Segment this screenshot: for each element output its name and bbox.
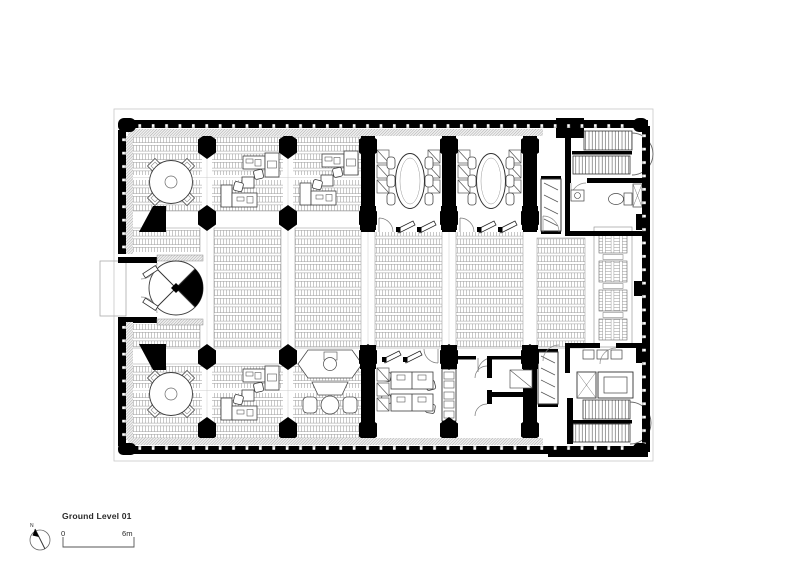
north-label: N — [30, 523, 34, 529]
meeting-table-1 — [387, 154, 433, 209]
wall-insulation-top — [128, 129, 543, 136]
cabinet-stack — [458, 150, 470, 193]
floor-plan-drawing: N Ground Level 01 0 6m — [0, 0, 800, 565]
north-arrow-icon: N — [30, 523, 50, 550]
meeting-table-2 — [468, 154, 514, 209]
wall-insulation-bottom — [128, 438, 543, 445]
shelf-unit — [538, 349, 558, 407]
wall-insulation-left — [126, 322, 133, 440]
east-seating-strip — [594, 214, 648, 363]
scale-start-label: 0 — [61, 529, 65, 538]
round-table-top-left — [148, 159, 195, 206]
stair-bottom-right — [572, 400, 651, 444]
scale-bar: 0 6m — [61, 529, 134, 547]
annotation-block: N Ground Level 01 0 6m — [30, 511, 134, 550]
core-bottom-right — [538, 343, 651, 457]
cabinet-stack — [377, 368, 389, 411]
elevator-bank — [577, 372, 633, 398]
wall-insulation-left — [126, 136, 133, 254]
kitchenette-room — [565, 343, 645, 373]
cabinet-stack — [377, 150, 389, 193]
level-title: Ground Level 01 — [62, 511, 132, 521]
plan-sheet: N Ground Level 01 0 6m — [0, 0, 800, 565]
av-cabinet-strip — [442, 369, 456, 421]
shelf-unit — [541, 176, 561, 234]
scale-end-label: 6m — [122, 529, 133, 538]
stair-top-right — [572, 131, 653, 175]
round-table-bottom-left — [148, 371, 195, 418]
